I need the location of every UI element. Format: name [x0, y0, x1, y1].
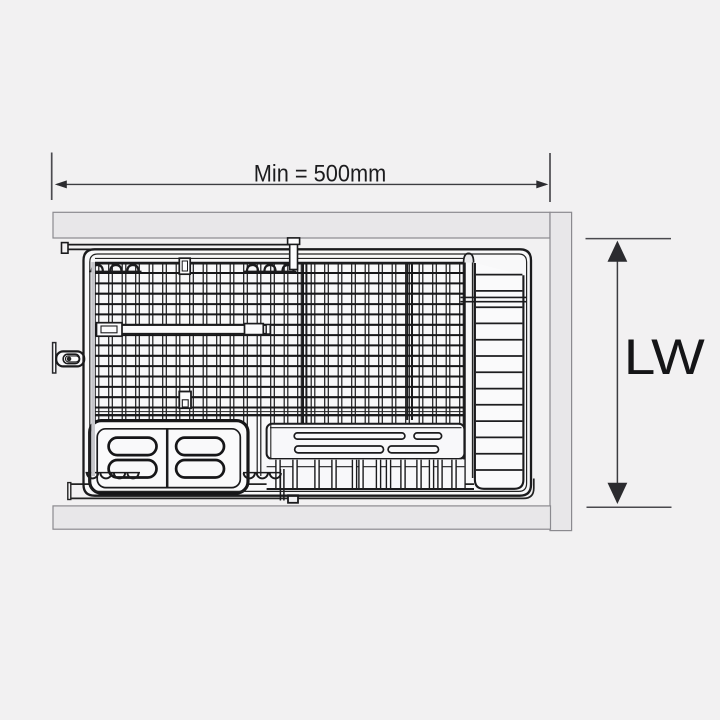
svg-text:LW: LW: [624, 328, 705, 385]
svg-text:Min = 500mm: Min = 500mm: [254, 162, 387, 188]
